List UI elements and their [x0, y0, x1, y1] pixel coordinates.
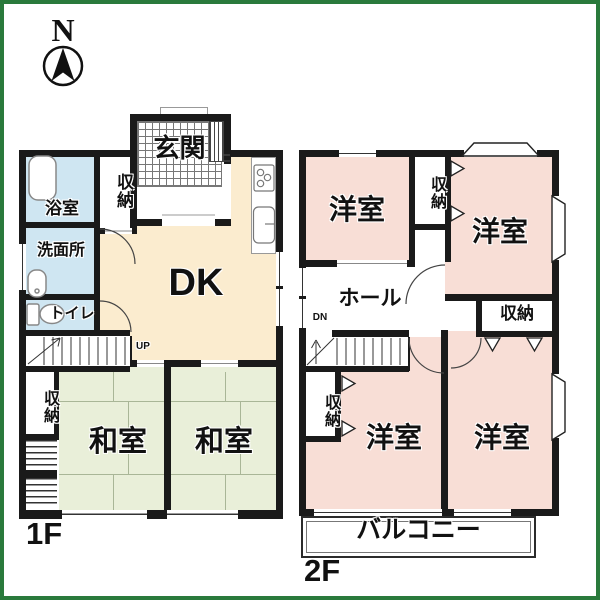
room-label-hall: ホール	[332, 288, 408, 310]
room-label-closet-1f-bottom: 収納	[29, 378, 57, 436]
floor2-label: 2F	[304, 555, 364, 588]
bathtub-icon	[29, 156, 56, 200]
closet-door-mark	[342, 376, 355, 391]
room-label-balcony: バルコニー	[341, 517, 496, 543]
room-label-closet-2f-bl: 収納	[310, 382, 338, 440]
room-label-yoshitsu-br: 洋室	[456, 423, 548, 452]
room-label-yoshitsu-tr: 洋室	[454, 217, 546, 246]
room-label-yoshitsu-tl: 洋室	[312, 195, 402, 224]
room-label-dk: DK	[150, 264, 242, 304]
room-label-bath: 浴室	[26, 200, 98, 218]
door-arc-2f-tr	[406, 265, 445, 304]
north-compass-icon	[44, 47, 82, 85]
floorplan-canvas: N 玄関 収納 浴室 洗面所 トイレ DK UP 収納 和室 和室 1F 洋室 …	[0, 0, 600, 600]
door-arc-toilet	[100, 301, 131, 332]
room-label-closet-2f-right: 収納	[484, 305, 550, 323]
bay-window-right-upper	[552, 196, 565, 262]
bay-window-right-lower	[552, 374, 565, 440]
stairs-down-label: DN	[307, 313, 333, 324]
room-label-washitsu-left: 和室	[70, 427, 166, 457]
washbasin-drain-icon	[35, 289, 39, 293]
room-label-genkan: 玄関	[137, 135, 222, 162]
room-label-toilet: トイレ	[46, 306, 98, 322]
kitchen-sink-icon	[254, 207, 275, 243]
door-arc-washroom	[100, 229, 135, 264]
north-label: N	[48, 14, 78, 48]
closet-door-mark	[485, 338, 500, 351]
closet-door-mark	[527, 338, 542, 351]
floorplan-decorations	[4, 4, 600, 600]
door-arc-2f-bl	[409, 338, 444, 373]
stairs-up-label: UP	[130, 342, 156, 353]
bay-window-top	[462, 143, 539, 156]
room-label-closet-2f-top: 収納	[416, 164, 444, 222]
stairs-2f	[307, 338, 400, 365]
room-label-washroom: 洗面所	[24, 243, 98, 260]
room-label-washitsu-right: 和室	[176, 427, 272, 457]
stairs-1f	[28, 337, 125, 365]
room-label-closet-1f-top: 収納	[104, 162, 132, 220]
floor1-label: 1F	[26, 518, 86, 551]
room-label-yoshitsu-bl: 洋室	[348, 423, 440, 452]
toilet-tank-icon	[27, 304, 39, 325]
door-arc-2f-br	[451, 338, 481, 368]
closet-door-mark	[451, 161, 464, 176]
